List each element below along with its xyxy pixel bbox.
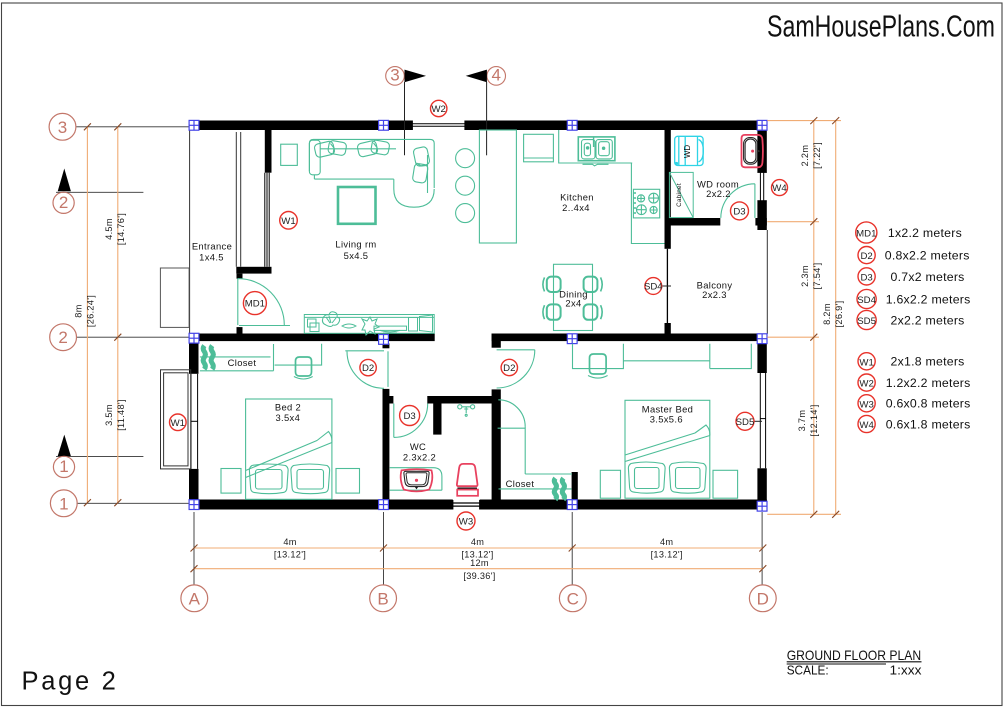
- svg-text:C: C: [567, 589, 579, 608]
- svg-text:Bed 2: Bed 2: [275, 401, 301, 412]
- svg-text:D3: D3: [733, 206, 745, 217]
- svg-text:[14.76']: [14.76']: [116, 213, 126, 245]
- svg-text:Cabinet: Cabinet: [676, 183, 683, 207]
- svg-text:D2: D2: [362, 363, 374, 374]
- svg-text:W1: W1: [859, 357, 873, 368]
- svg-text:Closet: Closet: [228, 357, 257, 368]
- svg-text:B: B: [377, 589, 388, 608]
- svg-text:W1: W1: [281, 216, 295, 227]
- svg-text:3: 3: [390, 65, 399, 84]
- svg-text:2x1.8 meters: 2x1.8 meters: [891, 355, 965, 369]
- svg-text:8m: 8m: [74, 304, 84, 317]
- svg-text:2.3x2.2: 2.3x2.2: [403, 452, 436, 463]
- svg-text:D3: D3: [860, 272, 872, 283]
- svg-text:Closet: Closet: [506, 478, 535, 489]
- svg-text:Entrance: Entrance: [192, 241, 232, 252]
- svg-text:3.5x4: 3.5x4: [275, 412, 300, 423]
- svg-text:[11.48']: [11.48']: [116, 399, 126, 431]
- svg-text:SD5: SD5: [857, 316, 876, 327]
- svg-text:2.3m: 2.3m: [800, 265, 810, 287]
- svg-text:2..4x4: 2..4x4: [562, 202, 590, 213]
- svg-text:[13.12']: [13.12']: [274, 550, 306, 560]
- svg-text:[26.24']: [26.24']: [86, 295, 96, 327]
- svg-text:[12.14']: [12.14']: [809, 404, 819, 436]
- svg-text:8.2m: 8.2m: [822, 303, 832, 325]
- svg-text:SD5: SD5: [736, 417, 755, 428]
- svg-text:3: 3: [58, 118, 67, 137]
- svg-text:4m: 4m: [471, 537, 484, 547]
- svg-text:[26.9']: [26.9']: [834, 301, 844, 328]
- svg-text:SamHousePlans.Com: SamHousePlans.Com: [767, 9, 995, 44]
- svg-text:4: 4: [491, 65, 500, 84]
- svg-text:2x4: 2x4: [565, 297, 581, 308]
- svg-text:0.7x2 meters: 0.7x2 meters: [891, 270, 965, 284]
- svg-text:Kitchen: Kitchen: [560, 192, 594, 203]
- svg-text:W1: W1: [171, 418, 185, 429]
- svg-text:1: 1: [59, 494, 68, 513]
- svg-text:WD: WD: [683, 145, 692, 159]
- svg-text:[7.54']: [7.54']: [812, 263, 822, 290]
- svg-text:[7.22']: [7.22']: [812, 142, 822, 169]
- svg-text:SD4: SD4: [644, 282, 663, 293]
- svg-text:5x4.5: 5x4.5: [344, 250, 369, 261]
- svg-text:4m: 4m: [660, 537, 673, 547]
- svg-text:2x2.3: 2x2.3: [702, 289, 727, 300]
- svg-text:MD1: MD1: [245, 299, 265, 310]
- svg-text:1.2x2.2 meters: 1.2x2.2 meters: [886, 376, 971, 390]
- svg-text:W4: W4: [859, 420, 874, 431]
- svg-text:MD1: MD1: [856, 229, 876, 240]
- svg-text:Living rm: Living rm: [335, 238, 376, 249]
- svg-text:2x2.2: 2x2.2: [706, 188, 731, 199]
- svg-text:1x2.2 meters: 1x2.2 meters: [888, 226, 962, 240]
- svg-text:2: 2: [59, 193, 68, 212]
- svg-text:[39.36']: [39.36']: [463, 571, 495, 581]
- svg-text:WC: WC: [410, 441, 426, 452]
- svg-text:1.6x2.2 meters: 1.6x2.2 meters: [886, 292, 971, 306]
- svg-text:2: 2: [58, 328, 67, 347]
- svg-text:W3: W3: [859, 399, 873, 410]
- svg-text:2x2.2 meters: 2x2.2 meters: [891, 313, 965, 327]
- svg-text:3.5x5.6: 3.5x5.6: [650, 414, 683, 425]
- svg-text:1:xxx: 1:xxx: [890, 663, 922, 678]
- svg-text:W2: W2: [859, 379, 873, 390]
- svg-text:W4: W4: [772, 183, 787, 194]
- svg-text:D2: D2: [503, 363, 515, 374]
- svg-text:W2: W2: [432, 104, 446, 115]
- svg-text:1: 1: [59, 457, 68, 476]
- svg-text:3.5m: 3.5m: [104, 404, 114, 426]
- svg-text:SD4: SD4: [857, 295, 876, 306]
- svg-text:4.5m: 4.5m: [104, 218, 114, 240]
- svg-text:SCALE:: SCALE:: [787, 663, 829, 678]
- svg-text:0.8x2.2 meters: 0.8x2.2 meters: [885, 249, 970, 263]
- svg-text:0.6x1.8 meters: 0.6x1.8 meters: [886, 417, 971, 431]
- svg-text:0.6x0.8 meters: 0.6x0.8 meters: [886, 397, 971, 411]
- svg-text:D3: D3: [403, 411, 415, 422]
- svg-text:1x4.5: 1x4.5: [199, 252, 224, 263]
- svg-text:GROUND FLOOR PLAN: GROUND FLOOR PLAN: [787, 648, 922, 663]
- svg-text:Page 2: Page 2: [22, 668, 119, 696]
- svg-text:D2: D2: [860, 251, 872, 262]
- svg-text:3.7m: 3.7m: [797, 410, 807, 432]
- svg-text:4m: 4m: [283, 537, 296, 547]
- svg-text:2.2m: 2.2m: [800, 145, 810, 167]
- svg-text:W3: W3: [459, 517, 473, 528]
- svg-text:[13.12']: [13.12']: [651, 550, 683, 560]
- svg-text:12m: 12m: [470, 558, 489, 568]
- svg-text:A: A: [189, 589, 201, 608]
- svg-text:D: D: [757, 589, 769, 608]
